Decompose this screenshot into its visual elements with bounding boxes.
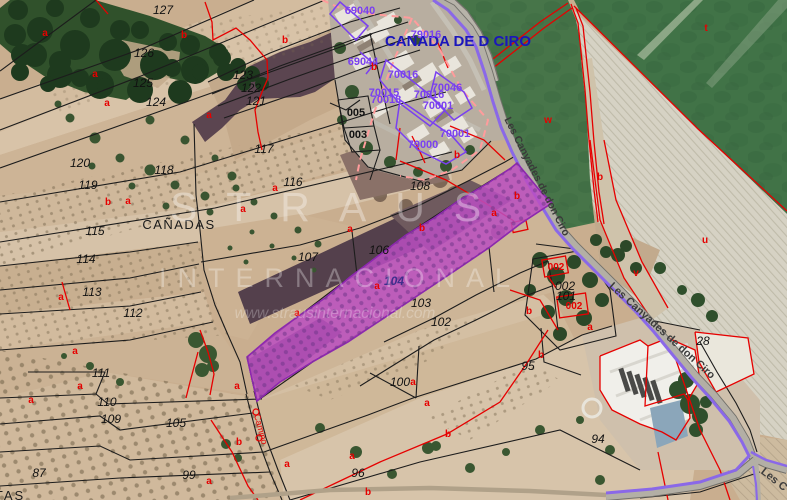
svg-text:002: 002 <box>555 279 575 293</box>
svg-text:002: 002 <box>548 262 565 273</box>
svg-text:a: a <box>424 398 430 409</box>
svg-text:121: 121 <box>246 94 266 108</box>
svg-text:123: 123 <box>233 68 253 82</box>
svg-text:94: 94 <box>591 432 605 446</box>
svg-text:79016: 79016 <box>411 29 442 41</box>
svg-text:70016: 70016 <box>388 69 419 81</box>
svg-text:106: 106 <box>369 243 389 257</box>
svg-text:a: a <box>104 98 110 109</box>
svg-text:100: 100 <box>390 375 410 389</box>
svg-text:118: 118 <box>154 163 173 177</box>
svg-text:95: 95 <box>521 359 535 373</box>
svg-text:105: 105 <box>166 416 186 430</box>
svg-text:a: a <box>42 28 48 39</box>
svg-text:96: 96 <box>351 466 365 480</box>
svg-text:u: u <box>702 235 708 246</box>
svg-text:122: 122 <box>241 81 261 95</box>
svg-text:b: b <box>538 350 544 361</box>
svg-text:w: w <box>543 115 552 126</box>
svg-text:a: a <box>206 110 212 121</box>
svg-text:126: 126 <box>134 46 154 60</box>
svg-text:87: 87 <box>32 466 47 480</box>
svg-text:109: 109 <box>101 412 121 426</box>
svg-text:b: b <box>371 62 377 73</box>
svg-text:115: 115 <box>85 224 104 238</box>
svg-text:110: 110 <box>97 395 116 409</box>
svg-text:a: a <box>206 476 212 487</box>
svg-text:99: 99 <box>182 468 196 482</box>
svg-text:b: b <box>236 437 242 448</box>
svg-text:v: v <box>633 268 639 279</box>
svg-text:114: 114 <box>76 252 95 266</box>
svg-text:b: b <box>181 30 187 41</box>
svg-text:a: a <box>125 196 131 207</box>
svg-text:79000: 79000 <box>408 139 439 151</box>
svg-text:124: 124 <box>146 95 166 109</box>
svg-text:CANADA DE D CIRO: CANADA DE D CIRO <box>385 33 531 50</box>
svg-text:127: 127 <box>153 3 174 17</box>
svg-text:STRAUS: STRAUS <box>170 184 510 230</box>
svg-text:005: 005 <box>347 107 365 119</box>
svg-text:b: b <box>105 197 111 208</box>
svg-text:a: a <box>92 69 98 80</box>
svg-text:a: a <box>410 377 416 388</box>
svg-text:70001: 70001 <box>423 100 454 112</box>
svg-text:b: b <box>526 306 532 317</box>
svg-text:69040: 69040 <box>345 5 376 17</box>
svg-text:120: 120 <box>70 156 90 170</box>
svg-text:b: b <box>454 150 460 161</box>
svg-text:125: 125 <box>133 76 153 90</box>
svg-text:b: b <box>445 429 451 440</box>
svg-text:a: a <box>234 381 240 392</box>
svg-text:003: 003 <box>349 129 367 141</box>
svg-text:107: 107 <box>298 250 319 264</box>
svg-text:www.strausinternacional.com: www.strausinternacional.com <box>235 305 436 322</box>
svg-text:117: 117 <box>254 142 274 156</box>
svg-text:a: a <box>58 292 64 303</box>
svg-text:a: a <box>587 322 593 333</box>
svg-text:TAS: TAS <box>0 488 25 500</box>
svg-text:112: 112 <box>123 306 142 320</box>
svg-text:119: 119 <box>78 178 97 192</box>
svg-text:b: b <box>282 35 288 46</box>
svg-text:113: 113 <box>82 285 101 299</box>
svg-text:a: a <box>72 346 78 357</box>
svg-text:a: a <box>77 381 83 392</box>
svg-text:b: b <box>514 191 520 202</box>
svg-text:INTERNACIONAL: INTERNACIONAL <box>159 263 521 293</box>
svg-text:002: 002 <box>566 301 583 312</box>
svg-text:b: b <box>365 487 371 498</box>
svg-text:70018: 70018 <box>371 94 402 106</box>
svg-text:70001: 70001 <box>440 128 471 140</box>
svg-text:a: a <box>284 459 290 470</box>
svg-text:a: a <box>349 451 355 462</box>
svg-text:111: 111 <box>92 366 110 380</box>
svg-text:b: b <box>597 172 603 183</box>
svg-text:28: 28 <box>695 334 710 348</box>
svg-text:a: a <box>28 395 34 406</box>
